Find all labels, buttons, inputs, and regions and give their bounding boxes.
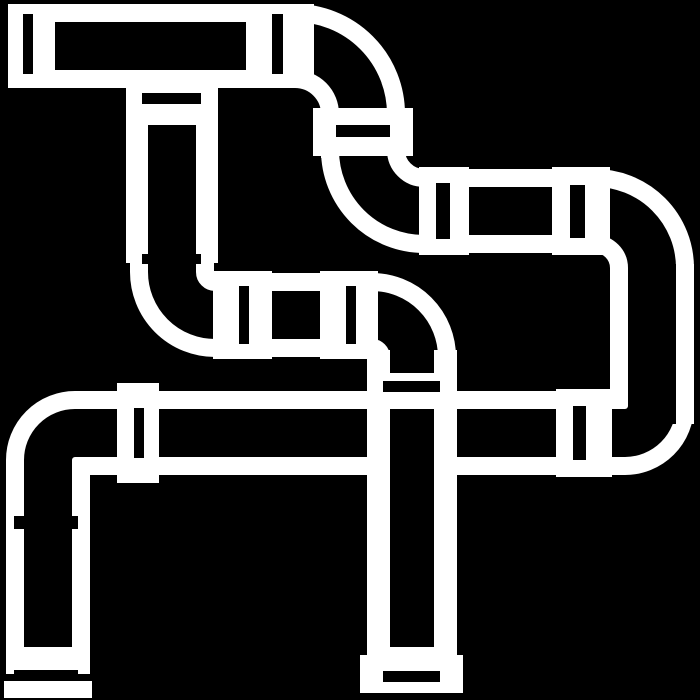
- gap-lower-pipe-left: [134, 408, 144, 458]
- end-cap-bottom-left: [4, 681, 92, 698]
- gap-top-pipe-left-cap: [23, 14, 33, 74]
- gap-top-pipe-right: [272, 14, 283, 74]
- gap-tee-joint: [383, 381, 440, 392]
- gap-upper-pipe-left: [436, 183, 450, 239]
- gap-middle-pipe-right: [346, 286, 356, 344]
- pipes-icon: [0, 0, 700, 700]
- gap-left-vertical-cap: [14, 670, 78, 681]
- gap-left-drop-bottom: [142, 254, 201, 264]
- gap-bottom-center-cap: [383, 671, 440, 682]
- gap-left-vertical-mid: [14, 516, 78, 529]
- gap-left-drop-top: [142, 93, 201, 104]
- gap-middle-pipe-left: [239, 286, 249, 344]
- gap-elbow-drop-joint: [336, 125, 390, 137]
- pipes-icon-stage: [0, 0, 700, 700]
- gap-upper-pipe-right: [570, 185, 585, 238]
- gap-lower-pipe-right: [573, 406, 586, 460]
- tee-inner-upper: [390, 344, 434, 373]
- tee-inner-lower: [390, 409, 434, 647]
